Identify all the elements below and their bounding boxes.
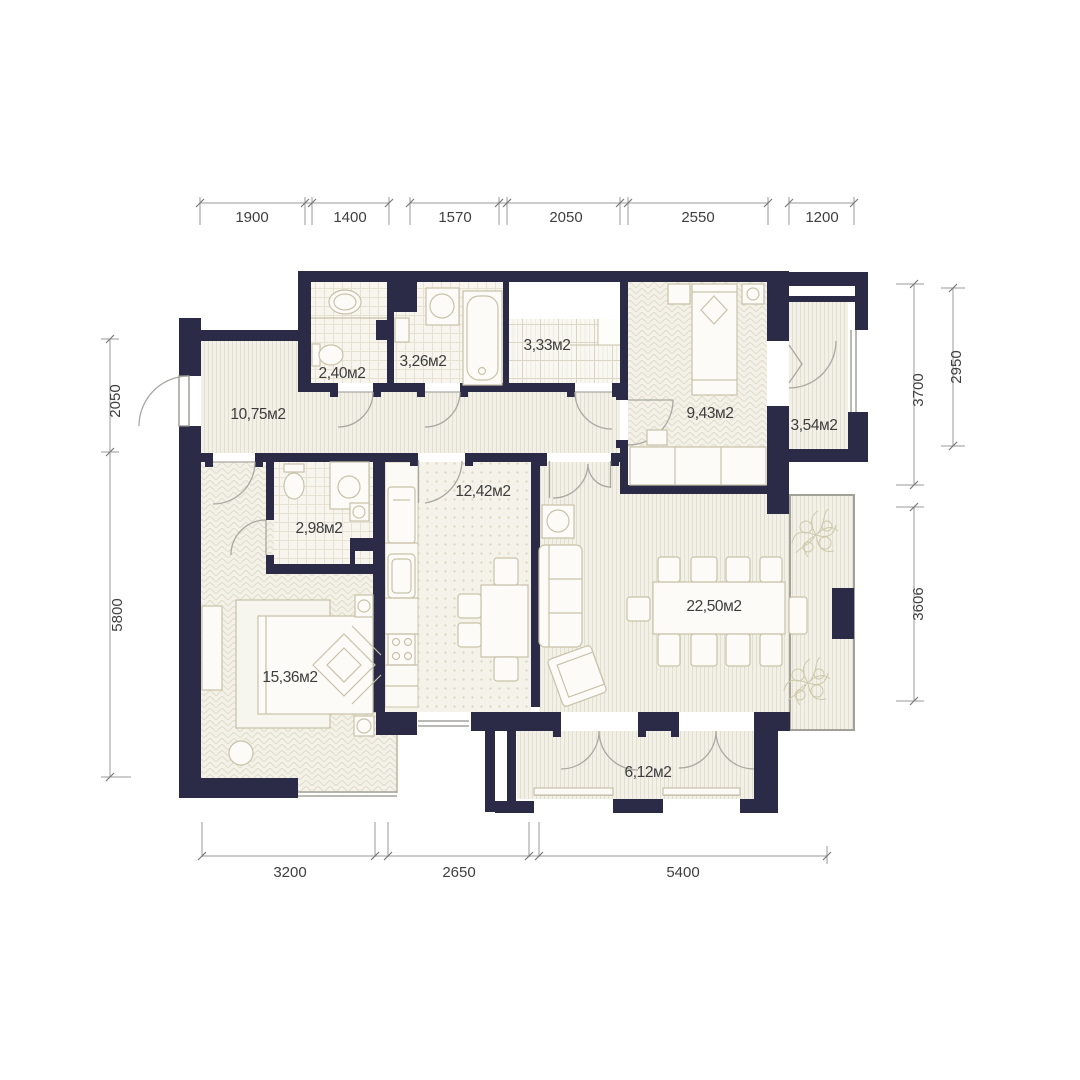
svg-text:2650: 2650 (442, 864, 475, 881)
svg-text:3606: 3606 (910, 587, 927, 620)
svg-text:2950: 2950 (948, 350, 965, 383)
svg-text:2050: 2050 (549, 209, 582, 226)
svg-text:2050: 2050 (107, 384, 124, 417)
svg-text:1900: 1900 (235, 209, 268, 226)
svg-text:3,26м2: 3,26м2 (399, 353, 446, 370)
svg-text:5800: 5800 (109, 598, 126, 631)
svg-text:3200: 3200 (273, 864, 306, 881)
svg-text:3,33м2: 3,33м2 (523, 337, 570, 354)
svg-text:9,43м2: 9,43м2 (686, 405, 733, 422)
svg-text:6,12м2: 6,12м2 (624, 764, 671, 781)
svg-text:1200: 1200 (805, 209, 838, 226)
svg-text:1570: 1570 (438, 209, 471, 226)
svg-text:2550: 2550 (681, 209, 714, 226)
svg-text:15,36м2: 15,36м2 (262, 669, 317, 686)
svg-text:2,98м2: 2,98м2 (295, 520, 342, 537)
svg-text:2,40м2: 2,40м2 (318, 365, 365, 382)
svg-text:5400: 5400 (666, 864, 699, 881)
svg-text:12,42м2: 12,42м2 (455, 483, 510, 500)
svg-text:1400: 1400 (333, 209, 366, 226)
svg-text:10,75м2: 10,75м2 (230, 406, 285, 423)
svg-text:22,50м2: 22,50м2 (686, 598, 741, 615)
svg-text:3,54м2: 3,54м2 (790, 417, 837, 434)
svg-text:3700: 3700 (910, 373, 927, 406)
